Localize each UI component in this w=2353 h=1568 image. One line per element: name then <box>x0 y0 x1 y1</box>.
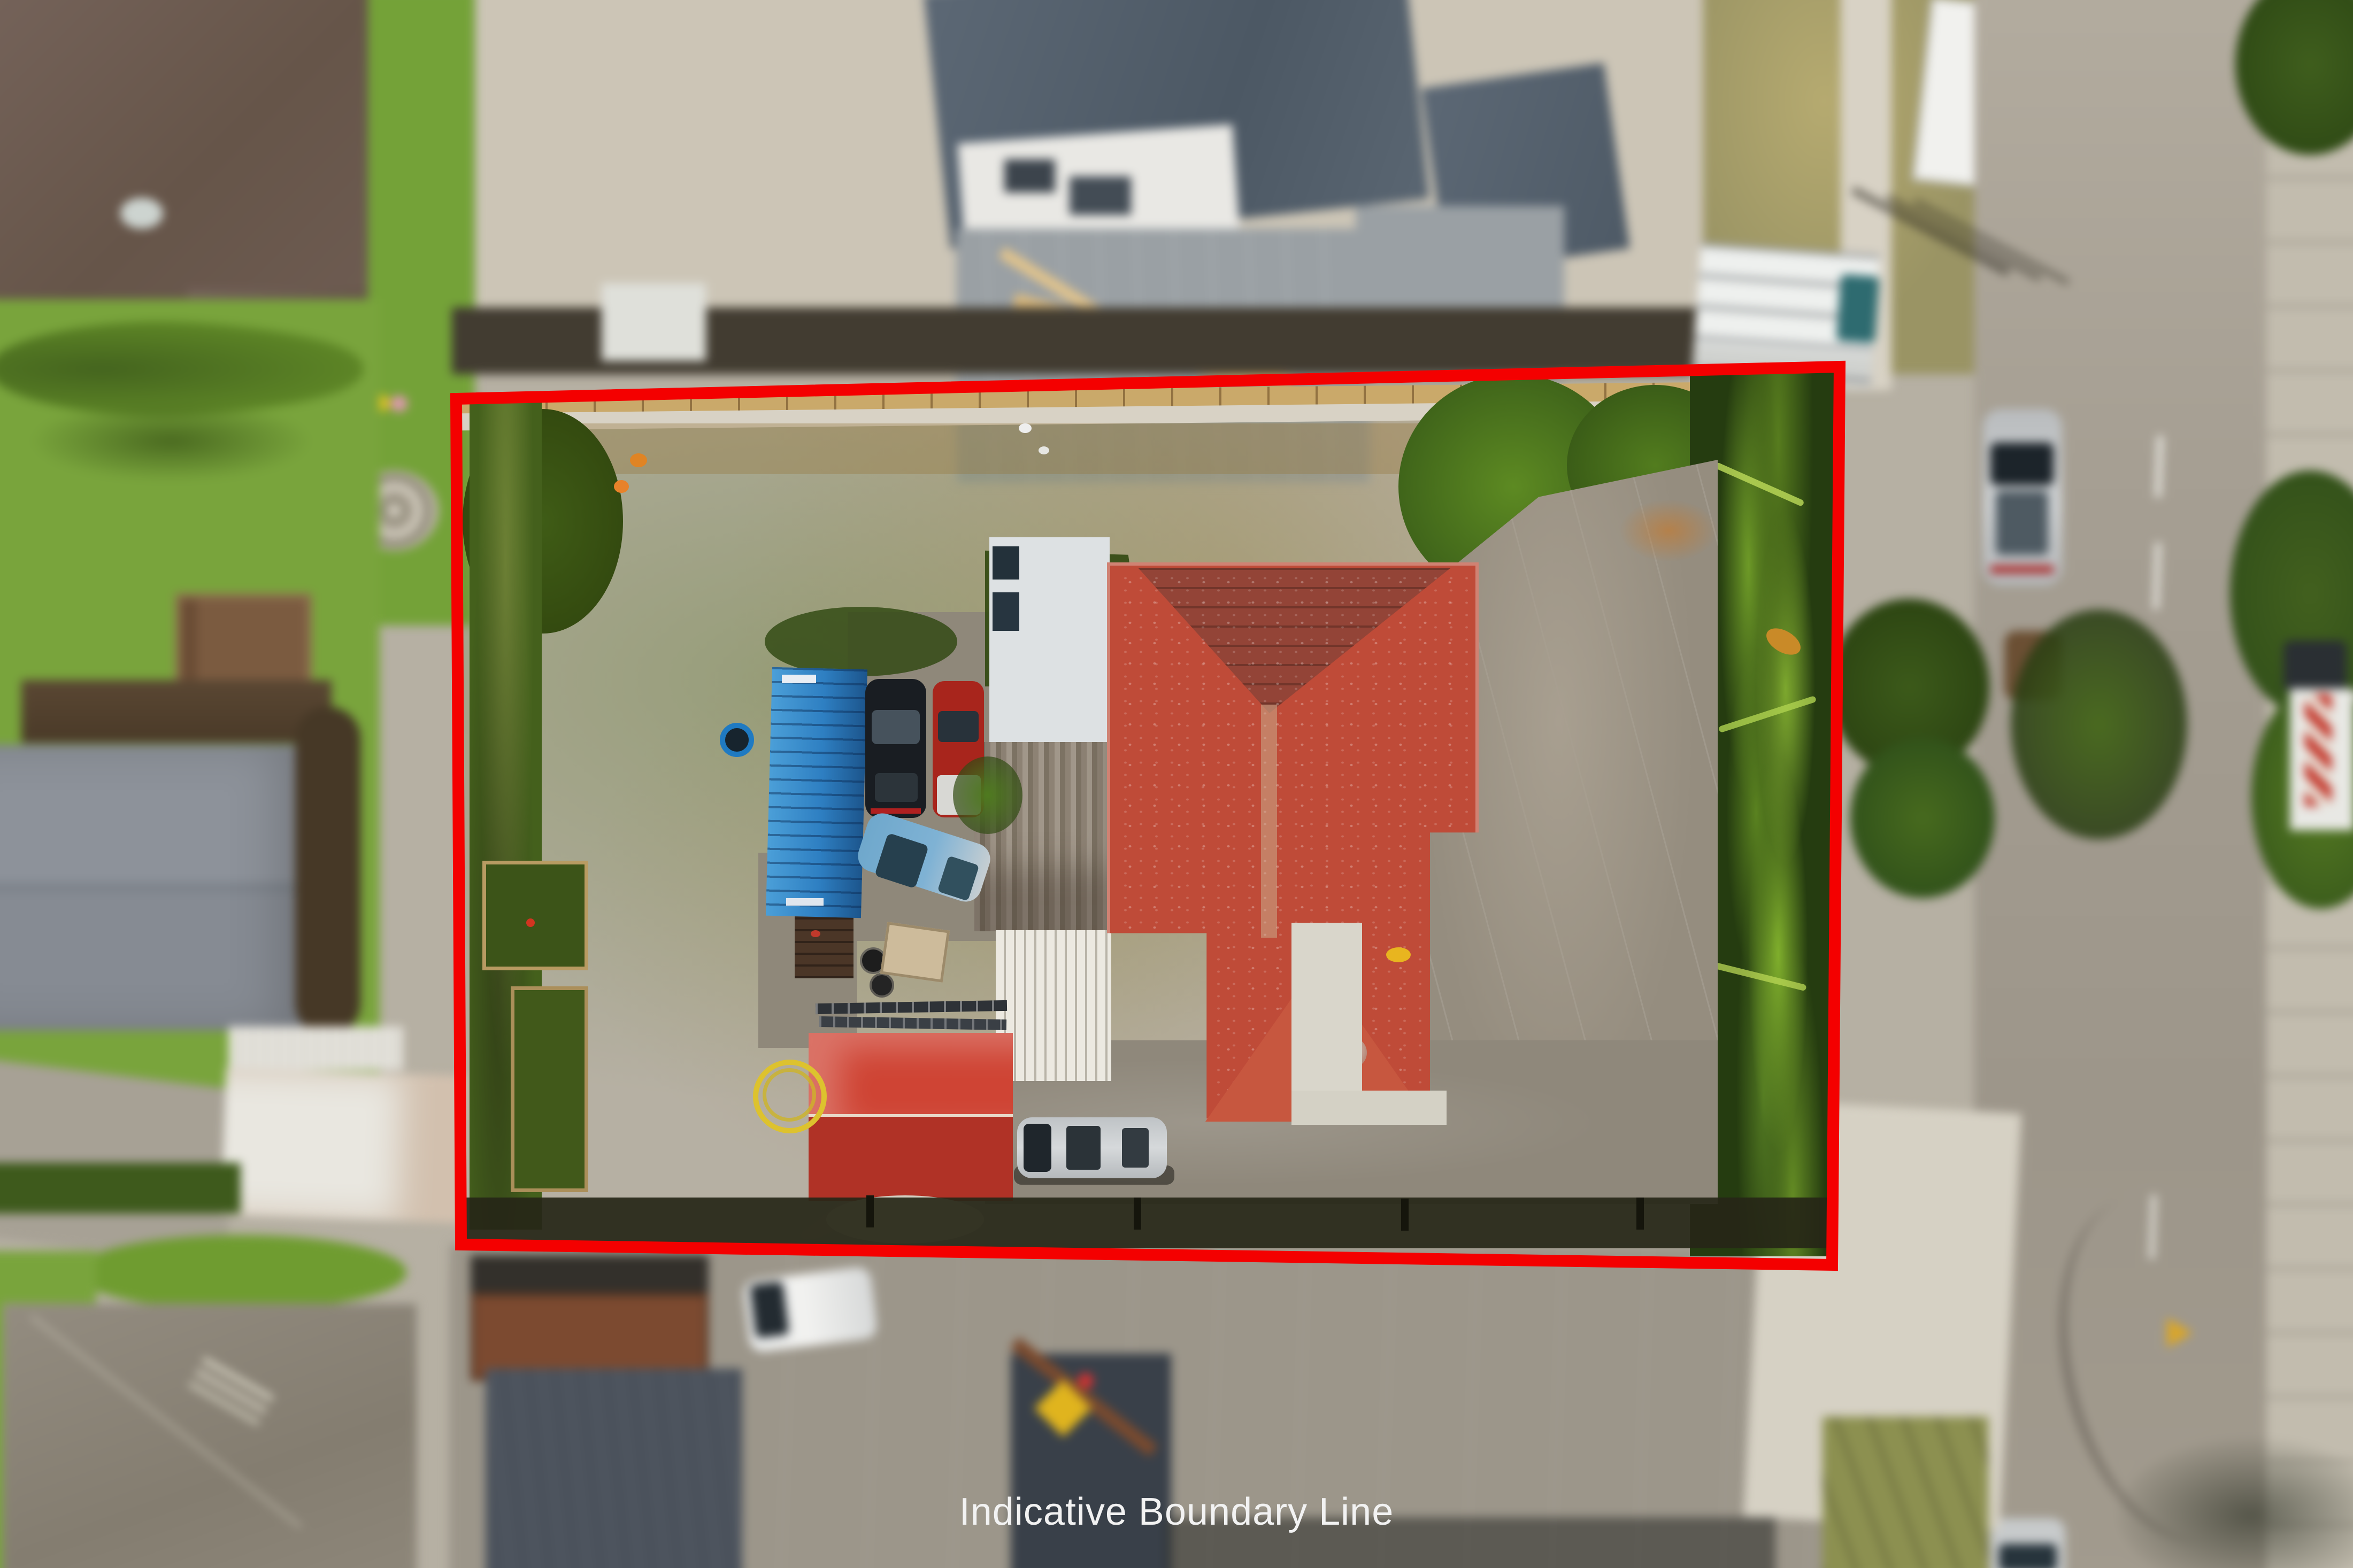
boundary-line <box>456 367 1840 1265</box>
boundary-overlay <box>0 0 2353 1568</box>
boundary-caption: Indicative Boundary Line <box>909 1489 1444 1538</box>
aerial-photo-canvas: Indicative Boundary Line <box>0 0 2353 1568</box>
